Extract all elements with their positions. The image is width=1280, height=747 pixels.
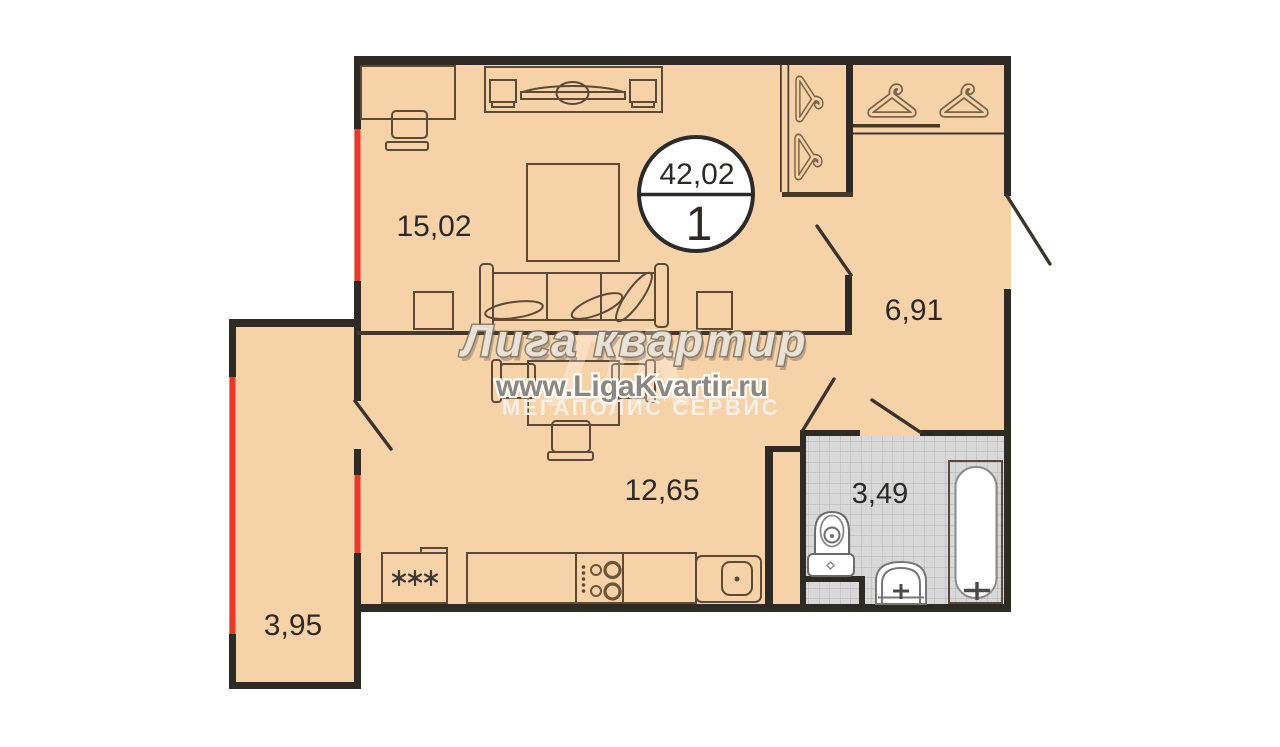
svg-text:Лига квартир: Лига квартир: [459, 315, 808, 366]
svg-text:15,02: 15,02: [396, 210, 471, 243]
svg-text:1: 1: [686, 198, 713, 251]
svg-text:МЕГАПОЛИС СЕРВИС: МЕГАПОЛИС СЕРВИС: [502, 395, 780, 420]
svg-text:3,49: 3,49: [852, 478, 908, 510]
svg-text:3,95: 3,95: [264, 609, 322, 642]
svg-text:12,65: 12,65: [624, 474, 699, 507]
svg-text:6,91: 6,91: [885, 294, 943, 327]
svg-text:42,02: 42,02: [659, 158, 734, 191]
